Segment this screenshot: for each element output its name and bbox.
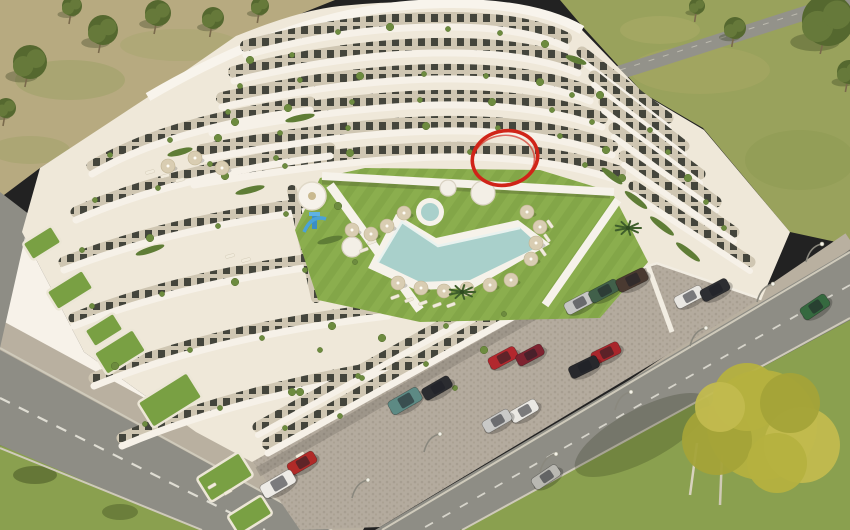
tree-foliage [4, 101, 15, 112]
lamp-head [771, 282, 775, 286]
scene-canvas [0, 0, 850, 530]
parasol-pole [386, 225, 389, 228]
shrub [92, 197, 97, 202]
shrub [541, 40, 549, 48]
shrub [207, 161, 212, 166]
tree-foliage [27, 49, 46, 68]
shrub [703, 199, 708, 204]
shrub [569, 92, 574, 97]
shrub [79, 247, 84, 252]
lamp-head [366, 478, 370, 482]
big-tree-foliage [695, 382, 745, 432]
bush-shadow [102, 504, 138, 520]
shrub [297, 77, 302, 82]
shrub [536, 78, 544, 86]
shrub [328, 322, 336, 330]
shrub [684, 174, 692, 182]
parasol-pole [370, 233, 373, 236]
shrub [582, 162, 587, 167]
tree-foliage [733, 20, 745, 32]
shrub [721, 225, 726, 230]
gazebo-table [308, 192, 316, 200]
parasol-pole [539, 226, 542, 229]
shrub [215, 223, 220, 228]
field-texture [620, 16, 700, 44]
shrub [334, 202, 342, 210]
shrub [231, 278, 239, 286]
shrub [246, 56, 254, 64]
shrub [155, 185, 160, 190]
shrub [111, 362, 119, 370]
shrub [421, 71, 426, 76]
parasol-pole [526, 211, 529, 214]
shrub [378, 334, 386, 342]
slide-roof [309, 212, 320, 216]
shrub [443, 323, 448, 328]
shrub [335, 29, 340, 34]
shrub [283, 211, 288, 216]
shrub [497, 30, 502, 35]
shrub [557, 133, 562, 138]
parasol-pole [194, 157, 197, 160]
round-planter [440, 180, 456, 196]
shrub [288, 388, 296, 396]
shrub [217, 405, 222, 410]
parasol-pole [535, 242, 538, 245]
shrub [214, 134, 222, 142]
shrub [352, 259, 357, 264]
parasol-pole [221, 167, 224, 170]
shrub [259, 335, 264, 340]
shrub [501, 311, 506, 316]
shrub [187, 347, 192, 352]
shrub [417, 97, 422, 102]
shrub [289, 52, 294, 57]
shrub [596, 91, 604, 99]
shrub [142, 421, 147, 426]
lamp-head [438, 432, 442, 436]
shrub [386, 23, 394, 31]
shrub [356, 72, 364, 80]
shrub [146, 234, 154, 242]
shrub [665, 149, 670, 154]
shrub [89, 303, 94, 308]
shrub [282, 425, 287, 430]
tree-foliage [100, 19, 117, 36]
jacuzzi-pool [421, 203, 439, 221]
shrub [277, 130, 282, 135]
shrub [231, 118, 239, 126]
tree-foliage [695, 0, 704, 9]
shrub [302, 267, 307, 272]
parasol-pole [167, 165, 170, 168]
shrub [282, 163, 287, 168]
tree-foliage [155, 3, 169, 17]
shrub [296, 388, 304, 396]
shrub [346, 149, 354, 157]
shrub [273, 155, 278, 160]
shrub [345, 125, 350, 130]
shrub [589, 119, 594, 124]
shrub [337, 413, 342, 418]
shrub [480, 346, 488, 354]
parasol-pole [489, 284, 492, 287]
lamp-head [704, 326, 708, 330]
shrub [237, 83, 242, 88]
shrub [317, 347, 322, 352]
big-tree-foliage [747, 433, 807, 493]
shrub [107, 152, 112, 157]
parasol-pole [351, 229, 354, 232]
palm-crown [626, 226, 630, 230]
shrub [488, 98, 496, 106]
shrub [422, 122, 430, 130]
shrub [359, 375, 364, 380]
lamp-head [554, 452, 558, 456]
shrub [167, 137, 172, 142]
shrub [647, 127, 652, 132]
shrub [483, 73, 488, 78]
shrub [159, 291, 164, 296]
parasol-pole [403, 212, 406, 215]
lamp-head [820, 242, 824, 246]
shrub [349, 99, 354, 104]
parasol-pole [397, 282, 400, 285]
aerial-render-image [0, 0, 850, 530]
round-planter [342, 237, 362, 257]
shrub [445, 26, 450, 31]
palm-crown [460, 290, 464, 294]
tree-foliage [211, 10, 223, 22]
shrub [225, 109, 230, 114]
lamp-head [629, 390, 633, 394]
shrub [284, 104, 292, 112]
parasol-pole [443, 290, 446, 293]
field-texture [745, 130, 850, 190]
parasol-pole [420, 287, 423, 290]
shrub [602, 146, 610, 154]
parasol-pole [530, 258, 533, 261]
shrub [549, 107, 554, 112]
shrub [423, 361, 428, 366]
big-tree-foliage [760, 373, 820, 433]
parasol-pole [510, 279, 513, 282]
